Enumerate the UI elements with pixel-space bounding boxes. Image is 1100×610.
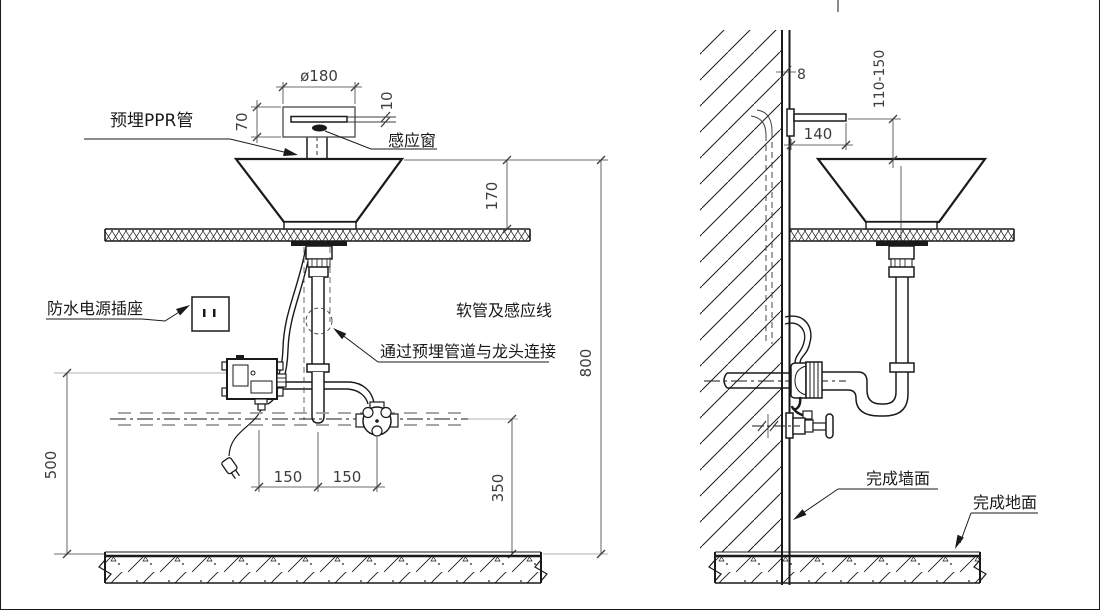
side-view: 8 140	[700, 0, 1038, 585]
dim-text-sensor-slot: 10	[378, 91, 396, 110]
leader-arrow-icon	[283, 148, 298, 156]
dim-text-spout-diameter: ø180	[300, 67, 338, 85]
control-box	[222, 355, 286, 410]
technical-drawing: ø180 70 10 感应窗 预埋PPR管	[0, 0, 1100, 610]
label-finished-wall: 完成墙面	[793, 469, 938, 520]
dim-spout-body-height: 70	[233, 100, 281, 143]
countertop-side	[790, 229, 1014, 241]
waterproof-socket-label: 防水电源插座	[47, 299, 143, 318]
dim-socket-height: 500	[42, 369, 226, 558]
sensor-window-label: 感应窗	[388, 131, 436, 150]
label-hose-note: 软管及感应线 通过预埋管道与龙头连接	[333, 301, 556, 362]
dim-supply-height: 350	[468, 415, 518, 558]
label-waterproof-socket: 防水电源插座	[46, 299, 190, 321]
ppr-pipe-label: 预埋PPR管	[110, 111, 193, 131]
wall-section	[700, 0, 838, 552]
front-view: ø180 70 10 感应窗 预埋PPR管	[42, 67, 608, 583]
dim-text-basin-height: 170	[483, 182, 501, 211]
dim-offsets: 150 150	[251, 430, 385, 492]
drawing-canvas: ø180 70 10 感应窗 预埋PPR管	[0, 0, 1100, 610]
dim-spout-to-rim: 110-150	[848, 50, 901, 168]
floor-front	[99, 552, 547, 583]
dim-text-finish-thickness: 8	[797, 67, 806, 83]
label-ppr-pipe: 预埋PPR管	[84, 111, 298, 156]
hose-note-line2: 通过预埋管道与龙头连接	[380, 342, 556, 361]
countertop-front	[105, 229, 530, 241]
leader-arrow-icon	[176, 305, 190, 316]
dim-text-rim-height: 800	[577, 349, 595, 378]
finished-floor-label: 完成地面	[973, 493, 1037, 512]
floor-side	[709, 552, 986, 583]
finished-wall-label: 完成墙面	[866, 469, 930, 488]
faucet-front	[283, 107, 396, 158]
dim-text-spout-body-height: 70	[233, 112, 251, 131]
leader-arrow-icon	[333, 328, 346, 339]
dim-text-offset-right: 150	[333, 468, 362, 486]
dim-text-offset-left: 150	[274, 468, 303, 486]
dim-basin-height: 170	[404, 156, 608, 233]
leader-arrow-icon	[793, 509, 807, 520]
dim-text-spout-projection: 140	[804, 125, 833, 143]
drain-trap-side	[822, 241, 928, 416]
sensor-window-front	[312, 125, 327, 132]
supply-pipe-front	[110, 413, 468, 425]
dim-spout-diameter: ø180	[276, 67, 362, 104]
dim-text-socket-height: 500	[42, 451, 60, 480]
wall-outlet	[791, 362, 822, 416]
dim-text-supply-height: 350	[489, 474, 507, 503]
basin-front	[236, 159, 402, 229]
label-finished-floor: 完成地面	[955, 493, 1038, 549]
hose-note-line1: 软管及感应线	[456, 301, 552, 320]
angle-valve-front	[356, 402, 398, 436]
power-socket	[192, 297, 229, 331]
power-plug	[221, 410, 261, 480]
dim-text-spout-to-rim: 110-150	[872, 50, 888, 109]
